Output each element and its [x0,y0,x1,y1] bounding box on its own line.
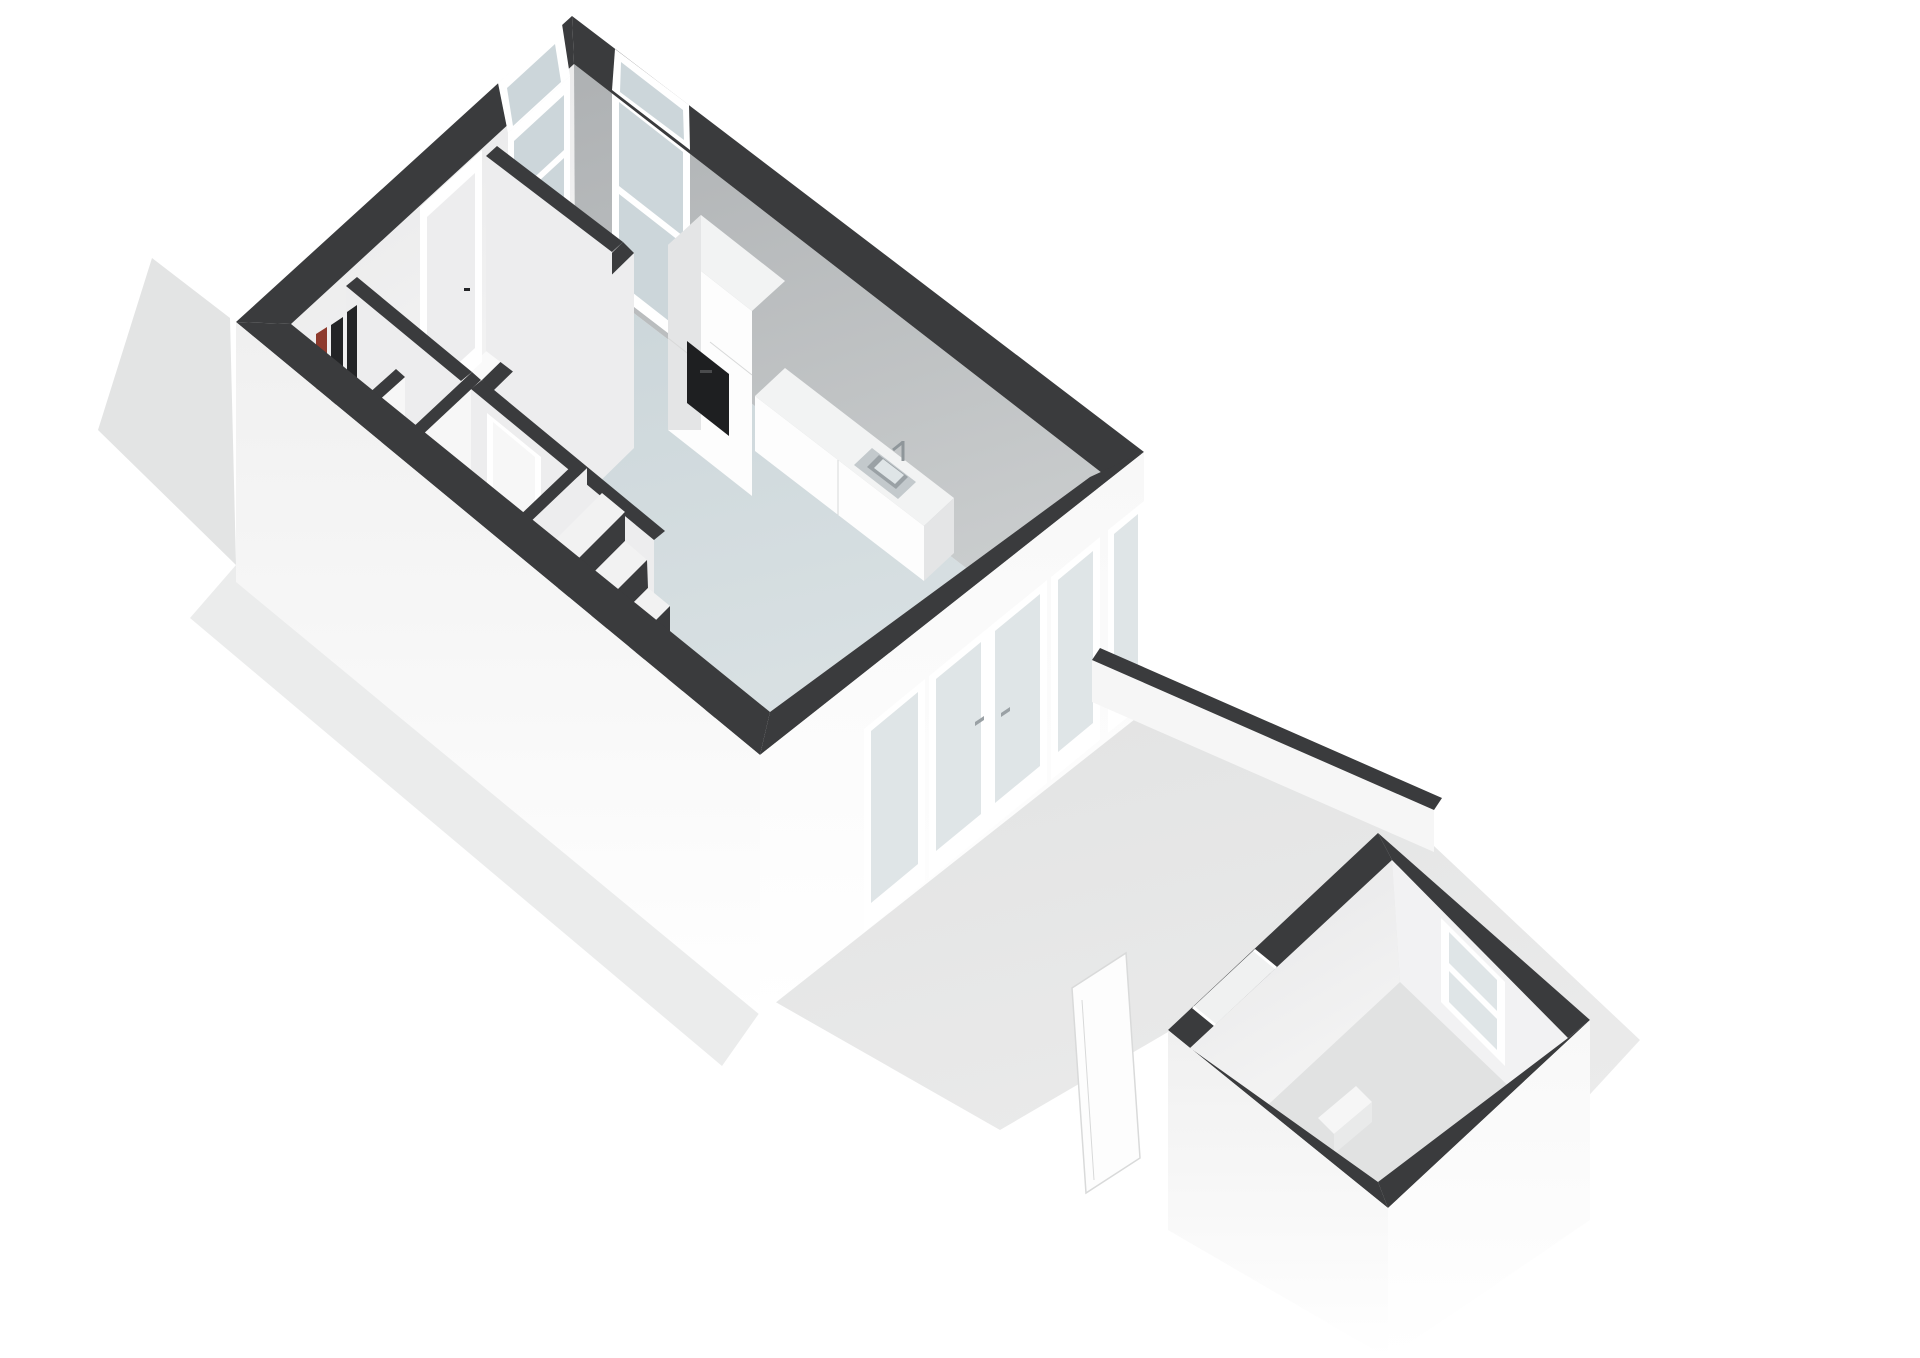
front-door-handle [464,288,470,291]
front-garden-strip [98,258,236,565]
floorplan-3d-view [0,0,1920,1358]
glazed-side-panel-right [1051,537,1100,780]
floorplan-canvas [0,0,1920,1358]
